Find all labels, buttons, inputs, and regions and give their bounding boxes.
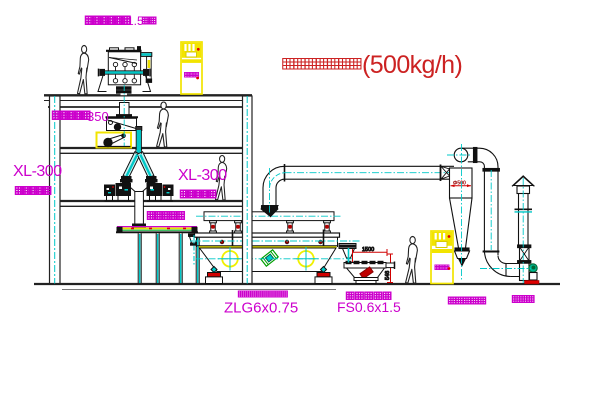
svg-text:XL-300: XL-300 [178, 167, 227, 184]
svg-text:XL-300: XL-300 [13, 163, 62, 180]
svg-text:1500: 1500 [362, 247, 374, 253]
svg-text:Φ500: Φ500 [453, 181, 466, 187]
svg-text:FS0.6x1.5: FS0.6x1.5 [337, 299, 401, 315]
svg-text:ZLG6x0.75: ZLG6x0.75 [224, 300, 298, 317]
svg-text:(500kg/h): (500kg/h) [362, 51, 462, 79]
svg-text:1.5: 1.5 [127, 14, 144, 28]
svg-text:350: 350 [87, 109, 109, 124]
svg-text:548: 548 [385, 271, 391, 280]
